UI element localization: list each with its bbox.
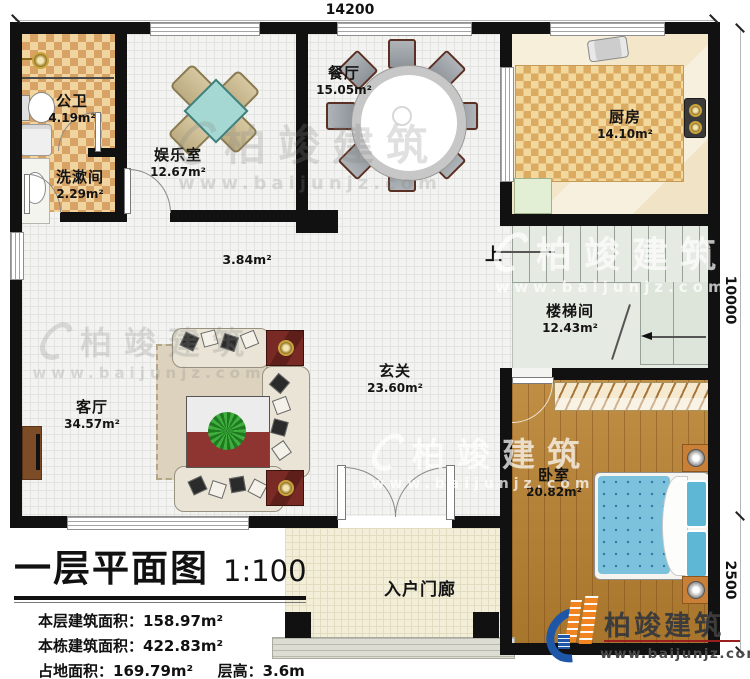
dim-line-right [740, 28, 741, 653]
wall-right [708, 22, 720, 655]
room-name: 洗漱间 [56, 168, 104, 187]
room-name: 娱乐室 [154, 146, 202, 165]
room-label-bathroom: 公卫 4.19m² [30, 92, 114, 126]
window-living-left [10, 232, 24, 280]
room-name: 厨房 [609, 108, 641, 127]
washing-machine [20, 124, 52, 156]
wardrobe [554, 382, 710, 411]
tv-icon [36, 434, 40, 470]
stat-value: 158.97m² [143, 612, 223, 630]
title-row: 一层平面图 1:100 [14, 538, 314, 592]
wall-bedroom-left [500, 380, 512, 655]
room-label-bedroom: 卧室 20.82m² [504, 466, 604, 500]
room-area: 2.29m² [56, 187, 103, 202]
room-area: 12.43m² [542, 321, 598, 336]
wall-entertainment-right [296, 22, 308, 233]
stat-value: 3.6m [263, 662, 305, 679]
window-kitchen [550, 22, 665, 36]
window-entertainment [150, 22, 260, 36]
room-label-kitchen: 厨房 14.10m² [575, 108, 675, 142]
stat-label: 本层建筑面积： [38, 612, 143, 630]
room-name: 客厅 [76, 398, 108, 417]
room-name: 玄关 [379, 362, 411, 381]
room-label-entertainment: 娱乐室 12.67m² [128, 146, 228, 180]
dim-top-value: 14200 [318, 2, 382, 18]
decor-icon [278, 480, 294, 496]
title-underline-thin [14, 602, 306, 603]
stat-row-2: 本栋建筑面积：422.83m² [14, 634, 314, 659]
dining-table-center [392, 106, 412, 126]
stat-label: 占地面积： [38, 662, 113, 679]
brand-company: 柏竣建筑 [604, 604, 724, 643]
stat-value: 169.79m² [113, 662, 193, 679]
wall-kitchen-bottom [500, 214, 720, 226]
brand-logo: 柏竣建筑 www.baijunjz.com [548, 596, 743, 674]
wall-washroom-bottom [60, 212, 127, 222]
room-name: 卧室 [538, 466, 570, 485]
room-area: 15.05m² [316, 83, 372, 98]
brand-website: www.baijunjz.com [600, 646, 750, 662]
room-name: 公卫 [56, 92, 88, 111]
page-title: 一层平面图 [14, 538, 209, 592]
stair-treads [512, 226, 708, 283]
shower-head-icon [32, 52, 49, 69]
stat-row-1: 本层建筑面积：158.97m² [14, 609, 314, 634]
window-dining [337, 22, 472, 36]
title-block: 一层平面图 1:100 本层建筑面积：158.97m² 本栋建筑面积：422.8… [14, 538, 314, 679]
room-name: 餐厅 [328, 64, 360, 83]
room-area: 34.57m² [64, 417, 120, 432]
porch-column-right [473, 612, 499, 638]
lamp-icon [687, 449, 705, 467]
logo-divider [604, 640, 740, 642]
pillow [229, 476, 246, 493]
stat-row-3: 占地面积：169.79m² 层高：3.6m [14, 659, 314, 679]
mattress [598, 476, 670, 574]
stat-label: 层高： [218, 662, 263, 679]
plant-icon [208, 412, 246, 450]
room-area: 23.60m² [367, 381, 423, 396]
pillow-2 [685, 530, 708, 578]
window-living-bottom [67, 516, 249, 530]
stair-landing-divider [673, 282, 674, 364]
room-area: 12.67m² [150, 165, 206, 180]
shower-partition [22, 77, 114, 79]
room-name: 入户门廊 [384, 580, 456, 601]
dim-right-upper-value: 10000 [722, 270, 738, 330]
sliding-door-kitchen [500, 67, 514, 182]
burner-2-icon [689, 121, 702, 134]
stair-arrowhead [641, 332, 652, 340]
stair-arrow-line-end [652, 336, 706, 338]
room-area: 14.10m² [597, 127, 653, 142]
stair-landing [640, 282, 709, 365]
floor-plan: 公卫 4.19m² 洗漱间 2.29m² 娱乐室 12.67m² 餐厅 15.0… [0, 0, 750, 679]
room-area: 4.19m² [48, 111, 95, 126]
column-area-note: 3.84m² [212, 252, 282, 267]
title-underline [14, 596, 306, 600]
wall-entertainment-bottom [170, 210, 308, 222]
room-label-dining: 餐厅 15.05m² [294, 64, 394, 98]
scale-label: 1:100 [223, 554, 307, 588]
column-hall [296, 210, 338, 233]
stat-value: 422.83m² [143, 637, 223, 655]
stairs-up-label: 上 [485, 240, 502, 265]
room-label-living: 客厅 34.57m² [42, 398, 142, 432]
stair-arrow-line-start [500, 251, 555, 253]
room-label-porch: 入户门廊 [345, 580, 495, 601]
logo-block-icon [558, 634, 570, 649]
decor-icon [278, 340, 294, 356]
room-area: 20.82m² [526, 485, 582, 500]
fridge [514, 178, 552, 214]
room-label-washroom: 洗漱间 2.29m² [28, 168, 132, 202]
dim-line-top [15, 20, 715, 21]
room-name: 楼梯间 [546, 302, 594, 321]
room-label-hall: 玄关 23.60m² [345, 362, 445, 396]
pillow-1 [685, 480, 708, 528]
room-label-stairwell: 楼梯间 12.43m² [520, 302, 620, 336]
stat-label: 本栋建筑面积： [38, 637, 143, 655]
burner-1-icon [689, 104, 702, 117]
entry-door-leaf-right [446, 465, 455, 520]
